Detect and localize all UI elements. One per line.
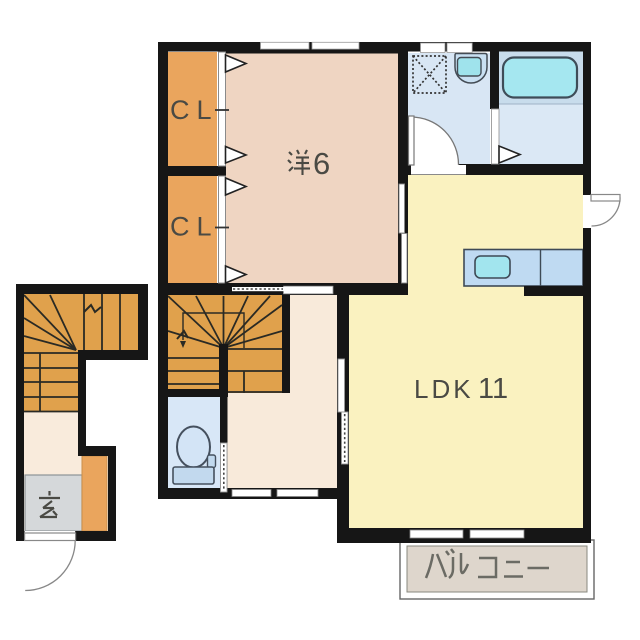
svg-text:CL: CL	[170, 95, 219, 125]
svg-text:11: 11	[478, 373, 508, 405]
svg-text:CL: CL	[170, 212, 219, 242]
svg-text:6: 6	[313, 146, 330, 181]
svg-text:LDK: LDK	[414, 374, 474, 404]
